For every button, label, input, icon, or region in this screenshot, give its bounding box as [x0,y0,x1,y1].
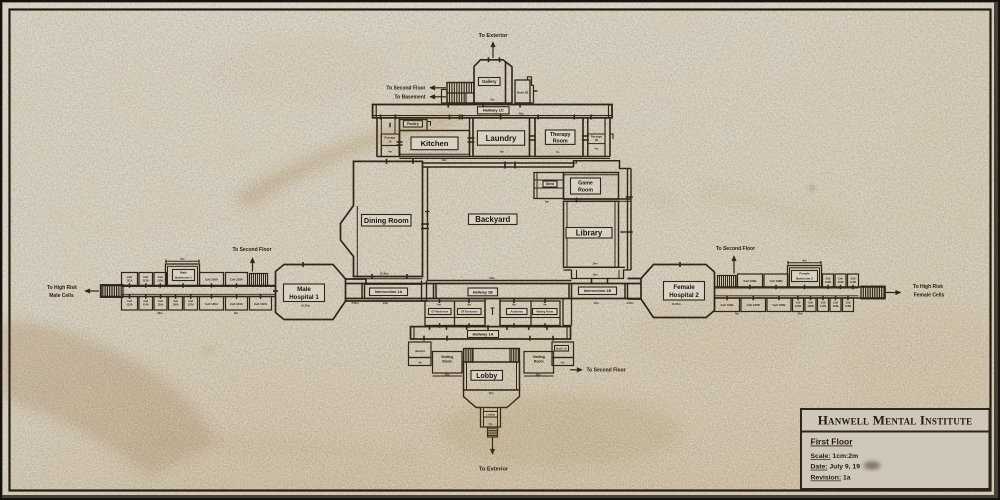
svg-text:Lobby: Lobby [476,373,497,380]
svg-text:Revision: 1a: Revision: 1a [811,475,851,482]
svg-text:112B: 112B [837,280,843,284]
svg-text:Hospital 2: Hospital 2 [669,292,699,299]
svg-text:Visiting: Visiting [441,355,453,359]
svg-text:GF Bookstore: GF Bookstore [461,310,478,313]
svg-text:24m: 24m [797,311,803,315]
svg-text:Cell: Cell [188,299,193,303]
svg-text:To Second Floor: To Second Floor [386,86,425,92]
svg-text:107B: 107B [795,304,801,308]
svg-text:111A: 111A [127,278,133,282]
svg-text:Cell 104A: Cell 104A [230,302,244,306]
svg-text:113B: 113B [832,304,838,308]
svg-text:10m: 10m [592,273,598,277]
svg-text:Cell: Cell [808,300,813,304]
svg-text:50m: 50m [489,276,495,280]
svg-text:Cell 106A: Cell 106A [205,302,219,306]
svg-text:To High Risk: To High Risk [47,285,77,291]
svg-text:10m: 10m [444,373,450,376]
svg-text:Cell: Cell [821,300,826,304]
svg-text:115B: 115B [845,304,851,308]
svg-text:Cell 105B: Cell 105B [772,303,785,307]
svg-text:107A: 107A [188,302,194,306]
svg-text:Female: Female [673,284,695,291]
svg-text:Female Cells: Female Cells [914,292,945,298]
svg-text:45m: 45m [518,111,524,115]
svg-text:2.55m: 2.55m [626,302,634,305]
svg-text:Cell 102A: Cell 102A [254,302,268,306]
svg-text:Gallery: Gallery [482,79,497,84]
svg-text:Cell: Cell [838,276,843,280]
svg-text:Cell: Cell [127,299,132,303]
svg-text:Cell: Cell [143,275,148,279]
svg-text:To Second Floor: To Second Floor [232,247,271,253]
svg-text:To Basement: To Basement [394,95,425,101]
svg-text:Janitor: Janitor [415,349,426,353]
svg-text:Room: Room [578,187,593,193]
svg-text:Hallway 1B: Hallway 1B [473,290,493,294]
svg-text:12m: 12m [488,392,494,395]
svg-text:112A: 112A [126,302,132,306]
svg-text:109A: 109A [172,302,178,306]
svg-text:Hanwell Mental Institute: Hanwell Mental Institute [818,413,973,428]
svg-text:Laundry: Laundry [486,134,517,143]
svg-text:Female: Female [799,272,810,276]
svg-text:1B: 1B [595,138,598,142]
svg-text:10.35m: 10.35m [301,303,310,307]
svg-text:109B: 109B [807,304,813,308]
svg-text:Library: Library [576,229,603,238]
svg-text:114B: 114B [850,280,856,284]
svg-text:Male: Male [297,286,311,293]
svg-text:Hallway 1C: Hallway 1C [483,108,504,113]
svg-text:Cell 106B: Cell 106B [743,279,756,283]
svg-text:Cell: Cell [158,299,163,303]
svg-text:Male: Male [180,271,187,275]
svg-text:To Second Floor: To Second Floor [587,368,626,374]
svg-text:Intersection 1A: Intersection 1A [375,290,403,294]
svg-text:114A: 114A [143,302,149,306]
svg-text:Cell: Cell [143,299,148,303]
svg-text:To Exterior: To Exterior [478,33,508,39]
svg-text:Kitchen: Kitchen [421,139,449,148]
svg-text:Cell: Cell [846,300,851,304]
svg-text:28m: 28m [157,311,163,315]
svg-text:Bath 1A: Bath 1A [556,346,568,350]
svg-text:To High Risk: To High Risk [913,284,943,290]
svg-text:Cell 103B: Cell 103B [747,303,760,307]
svg-text:Cell: Cell [127,275,132,279]
svg-text:110B: 110B [825,280,831,284]
svg-text:1A: 1A [388,139,391,143]
svg-text:Cell: Cell [173,299,178,303]
svg-text:Intersection 1B: Intersection 1B [584,289,612,293]
svg-text:Cell 101B: Cell 101B [720,303,733,307]
svg-text:Cell 108B: Cell 108B [769,279,782,283]
svg-text:To Exterior: To Exterior [479,467,509,473]
svg-text:115A: 115A [157,278,163,282]
svg-text:To Second Floor: To Second Floor [716,246,755,252]
svg-text:Game: Game [578,180,593,186]
svg-text:Scale: 1cm:2m: Scale: 1cm:2m [811,453,859,460]
svg-text:14m: 14m [592,261,598,265]
svg-text:Hospital 1: Hospital 1 [289,294,319,301]
svg-text:10.35m: 10.35m [672,302,681,306]
svg-text:Waiting Room: Waiting Room [536,310,553,313]
svg-text:Backyard: Backyard [475,215,510,224]
svg-text:111B: 111B [820,304,826,308]
svg-text:Archives: Archives [510,310,523,314]
svg-text:Cell: Cell [158,275,163,279]
svg-text:2.55m: 2.55m [351,302,359,305]
svg-text:10.35m: 10.35m [380,272,389,276]
svg-text:Bathroom 2: Bathroom 2 [796,277,813,281]
svg-text:Shed: Shed [546,182,554,186]
svg-text:GF Washroom: GF Washroom [431,310,449,313]
svg-text:10m: 10m [593,301,599,305]
svg-text:Room: Room [442,359,452,363]
svg-text:Room: Room [534,359,544,363]
svg-text:Cell: Cell [833,300,838,304]
svg-text:Visiting: Visiting [533,355,545,359]
svg-text:Bathroom 1: Bathroom 1 [175,276,192,280]
svg-text:Cell 105A: Cell 105A [205,278,219,282]
svg-text:Cell: Cell [796,300,801,304]
svg-text:Room: Room [553,138,568,144]
svg-text:Passage: Passage [591,135,602,139]
svg-text:113A: 113A [143,278,149,282]
svg-text:First Floor: First Floor [811,437,854,447]
svg-text:10m: 10m [535,373,541,376]
svg-text:Male Cells: Male Cells [49,293,74,299]
svg-text:Hallway 1A: Hallway 1A [472,331,493,336]
svg-text:Dining Room: Dining Room [364,216,409,225]
svg-text:Cell 103A: Cell 103A [230,278,244,282]
svg-text:116A: 116A [157,302,163,306]
svg-text:Date: July 9, 19: Date: July 9, 19 [811,464,861,471]
svg-text:Bath 1B: Bath 1B [517,91,529,95]
svg-text:Cell: Cell [851,276,856,280]
svg-text:Therapy: Therapy [550,132,571,138]
svg-text:Cell: Cell [826,276,831,280]
